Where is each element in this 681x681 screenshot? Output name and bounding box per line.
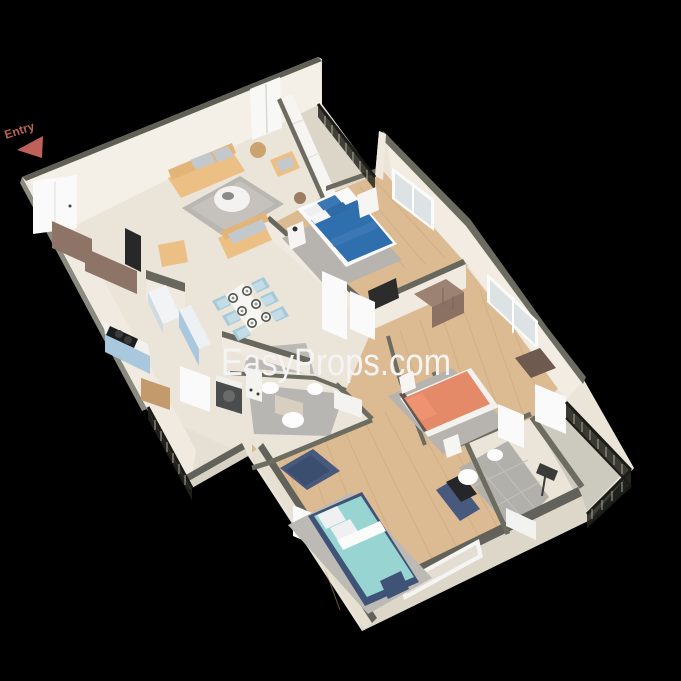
svg-text:EasyProps.com: EasyProps.com [221, 342, 451, 384]
